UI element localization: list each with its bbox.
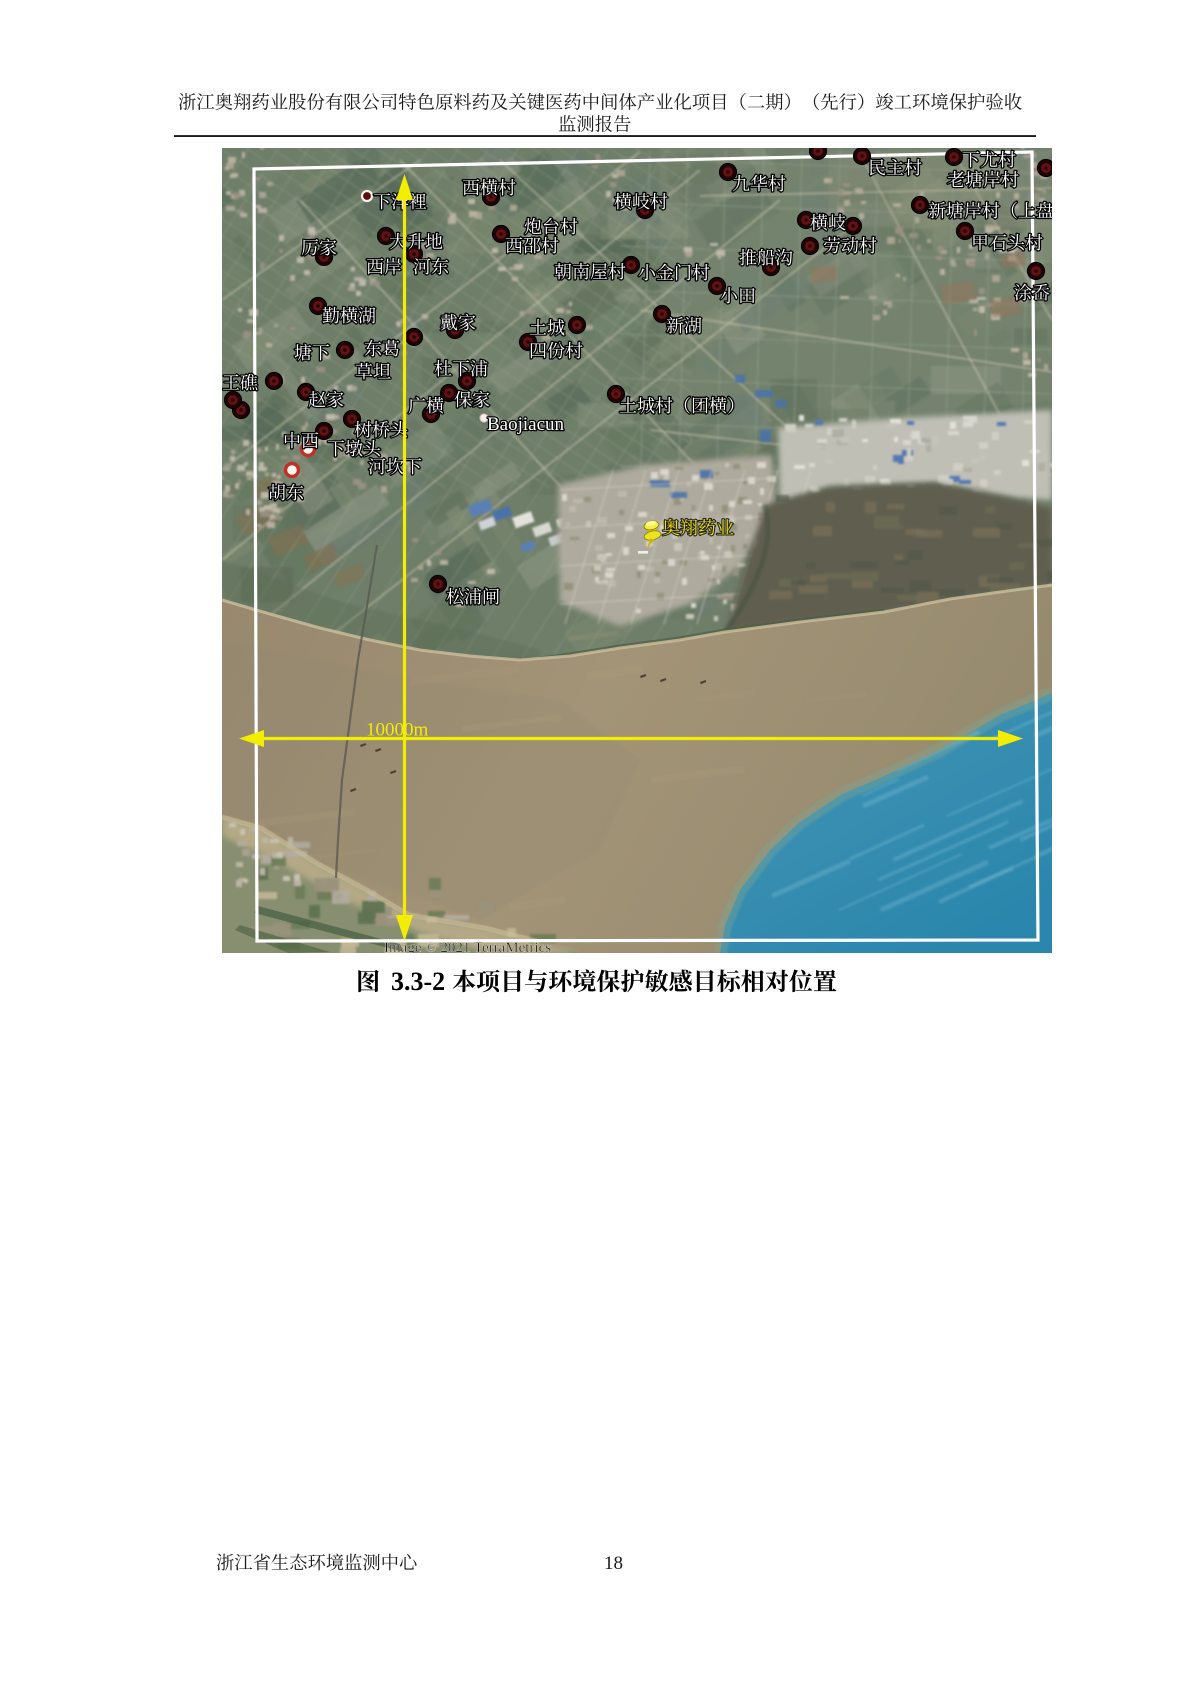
svg-text:3.3-2: 3.3-2 bbox=[391, 967, 445, 996]
svg-text:Baojiacun: Baojiacun bbox=[487, 414, 565, 435]
svg-text:18: 18 bbox=[604, 1553, 623, 1574]
svg-text:10000m: 10000m bbox=[366, 720, 429, 741]
